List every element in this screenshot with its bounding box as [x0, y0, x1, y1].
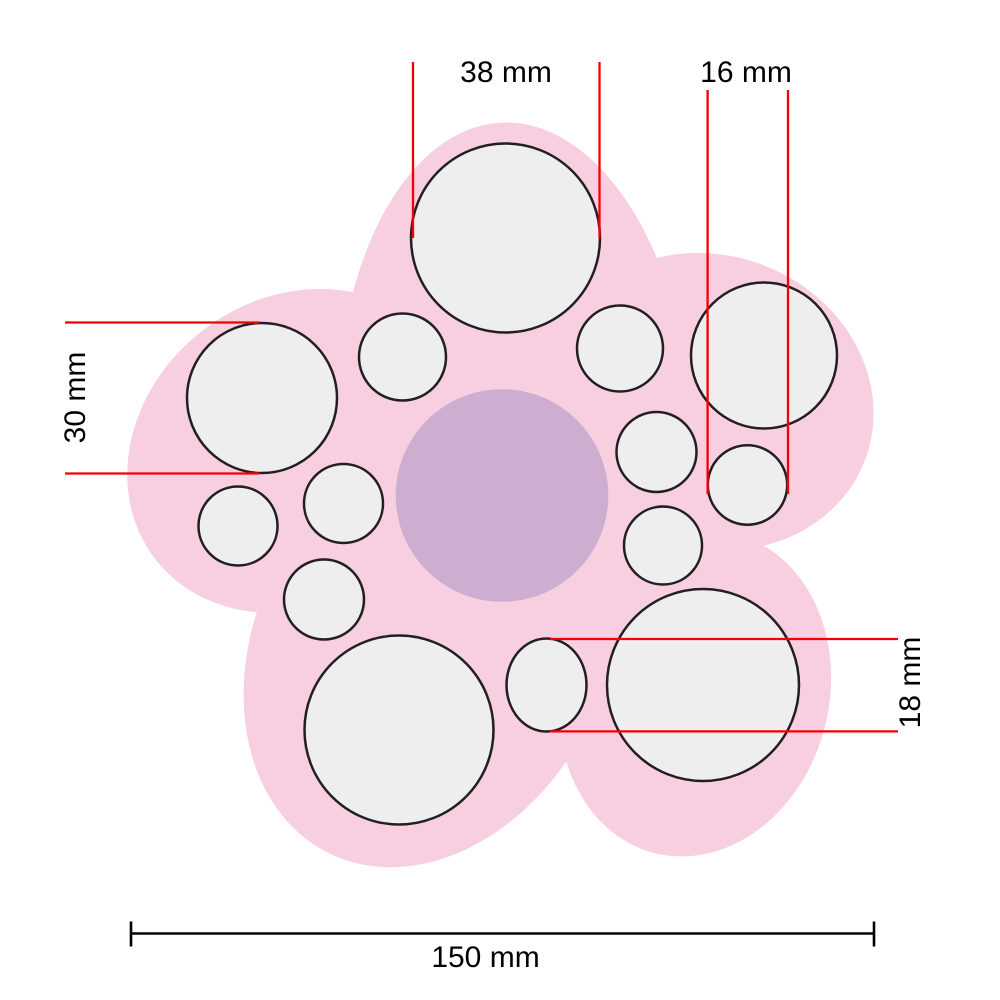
svg-text:38 mm: 38 mm: [460, 56, 552, 89]
svg-text:16 mm: 16 mm: [700, 56, 792, 89]
svg-text:150 mm: 150 mm: [431, 941, 539, 974]
svg-text:30 mm: 30 mm: [59, 352, 92, 444]
svg-text:18 mm: 18 mm: [894, 637, 927, 729]
